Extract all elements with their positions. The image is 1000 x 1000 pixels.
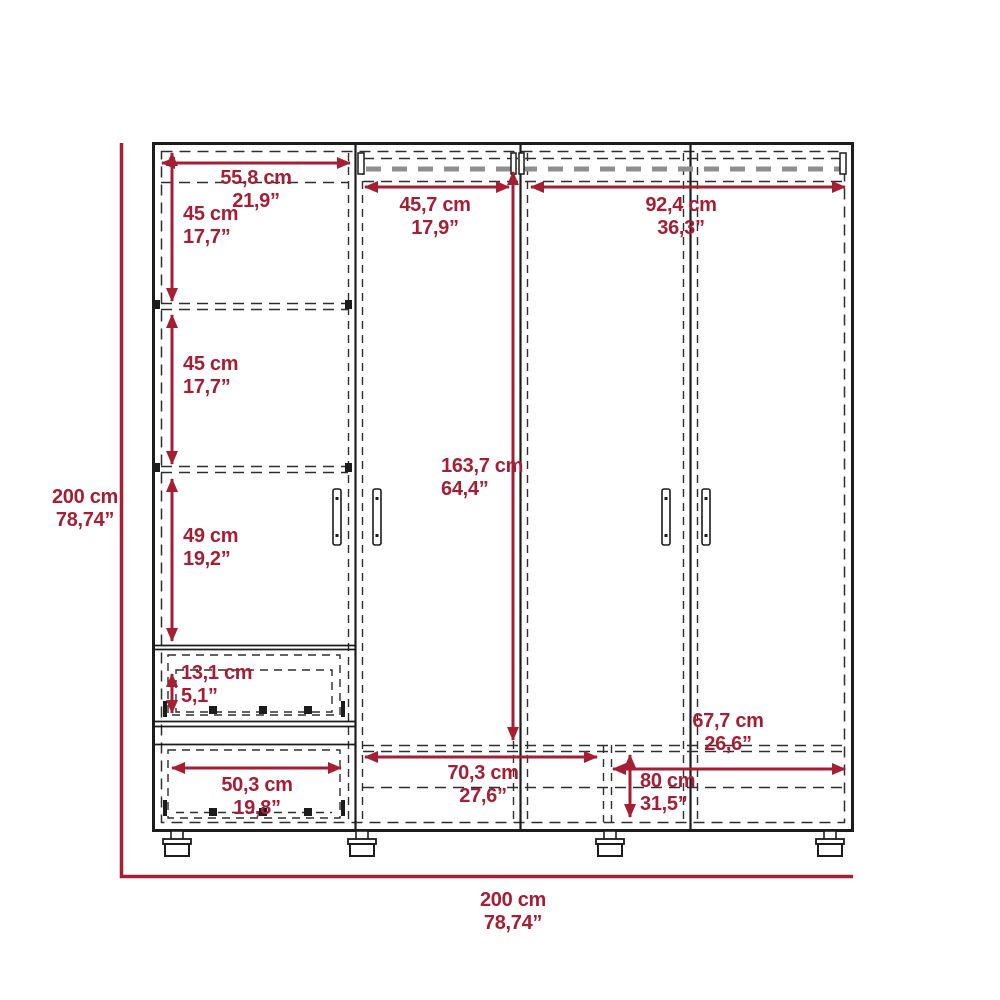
- dim-value-cm: 55,8 cm: [176, 167, 336, 190]
- dim-label-bottom-right-width: 67,7 cm 26,6”: [648, 710, 808, 756]
- dim-value-cm: 92,4 cm: [601, 194, 761, 217]
- door-handle: [373, 489, 381, 545]
- dim-value-inch: 78,74”: [25, 509, 145, 532]
- dim-value-cm: 67,7 cm: [648, 710, 808, 733]
- dim-value-inch: 26,6”: [648, 733, 808, 756]
- shelf-pin: [153, 463, 160, 472]
- dim-value-cm: 50,3 cm: [177, 774, 337, 797]
- dim-value-inch: 31,5”: [640, 793, 695, 816]
- door-handle: [702, 489, 710, 545]
- dim-value-inch: 5,1”: [181, 685, 252, 708]
- foot: [163, 831, 191, 856]
- shelf-pin: [345, 300, 352, 309]
- dim-value-cm: 163,7 cm: [441, 455, 523, 478]
- rod-bracket: [511, 153, 516, 174]
- dim-value-inch: 17,9”: [355, 217, 515, 240]
- dim-label-bottom-mid-width: 70,3 cm 27,6”: [403, 762, 563, 808]
- rod-bracket: [840, 153, 846, 174]
- rod-bracket: [358, 153, 364, 174]
- wardrobe-dimension-diagram: 55,8 cm 21,9” 45 cm 17,7” 45 cm 17,7” 49…: [0, 0, 1000, 1000]
- dim-value-cm: 49 cm: [183, 525, 238, 548]
- dim-value-inch: 78,74”: [433, 912, 593, 935]
- dim-label-section3-height: 49 cm 19,2”: [183, 525, 238, 571]
- dim-value-inch: 19,2”: [183, 548, 238, 571]
- dim-value-cm: 70,3 cm: [403, 762, 563, 785]
- foot: [816, 831, 844, 856]
- dim-label-rod-right-width: 92,4 cm 36,3”: [601, 194, 761, 240]
- dim-value-cm: 45,7 cm: [355, 194, 515, 217]
- dim-label-overall-width: 200 cm 78,74”: [433, 889, 593, 935]
- dim-value-inch: 17,7”: [183, 226, 238, 249]
- dim-label-section1-height: 45 cm 17,7”: [183, 203, 238, 249]
- dim-value-cm: 13,1 cm: [181, 662, 252, 685]
- foot: [348, 831, 376, 856]
- dim-value-cm: 200 cm: [25, 486, 145, 509]
- door-handle: [333, 489, 341, 545]
- foot: [596, 831, 624, 856]
- dim-label-door-height: 163,7 cm 64,4”: [441, 455, 523, 501]
- dim-label-drawer-height: 13,1 cm 5,1”: [181, 662, 252, 708]
- dim-value-cm: 80 cm: [640, 770, 695, 793]
- dim-label-drawer-width: 50,3 cm 19,8”: [177, 774, 337, 820]
- shelf-pin: [345, 463, 352, 472]
- dim-label-rod-mid-width: 45,7 cm 17,9”: [355, 194, 515, 240]
- rod-bracket: [519, 153, 524, 174]
- dim-value-inch: 17,7”: [183, 376, 238, 399]
- feet: [163, 831, 844, 856]
- dim-value-inch: 64,4”: [441, 478, 523, 501]
- dim-value-cm: 45 cm: [183, 353, 238, 376]
- dim-value-cm: 45 cm: [183, 203, 238, 226]
- dim-value-inch: 19,8”: [177, 797, 337, 820]
- dim-value-inch: 36,3”: [601, 217, 761, 240]
- dim-value-inch: 27,6”: [403, 785, 563, 808]
- door-handle: [662, 489, 670, 545]
- dim-value-cm: 200 cm: [433, 889, 593, 912]
- shelf-pin: [153, 300, 160, 309]
- dim-label-overall-height: 200 cm 78,74”: [25, 486, 145, 532]
- dim-label-bottom-right-depth: 80 cm 31,5”: [640, 770, 695, 816]
- dim-label-section2-height: 45 cm 17,7”: [183, 353, 238, 399]
